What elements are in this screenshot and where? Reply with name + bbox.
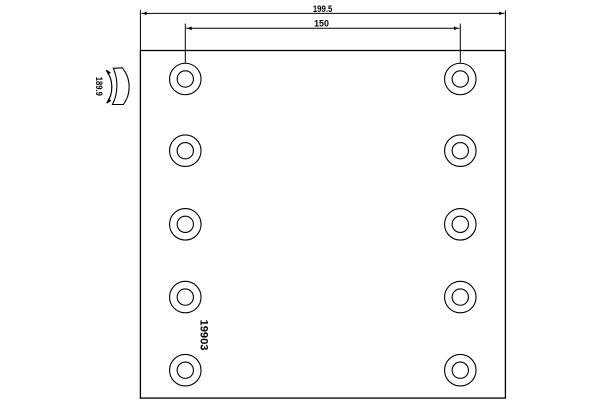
svg-text:199.5: 199.5 <box>313 4 333 14</box>
svg-text:150: 150 <box>314 18 329 28</box>
svg-text:189.9: 189.9 <box>94 77 104 96</box>
svg-text:19903: 19903 <box>198 320 210 351</box>
